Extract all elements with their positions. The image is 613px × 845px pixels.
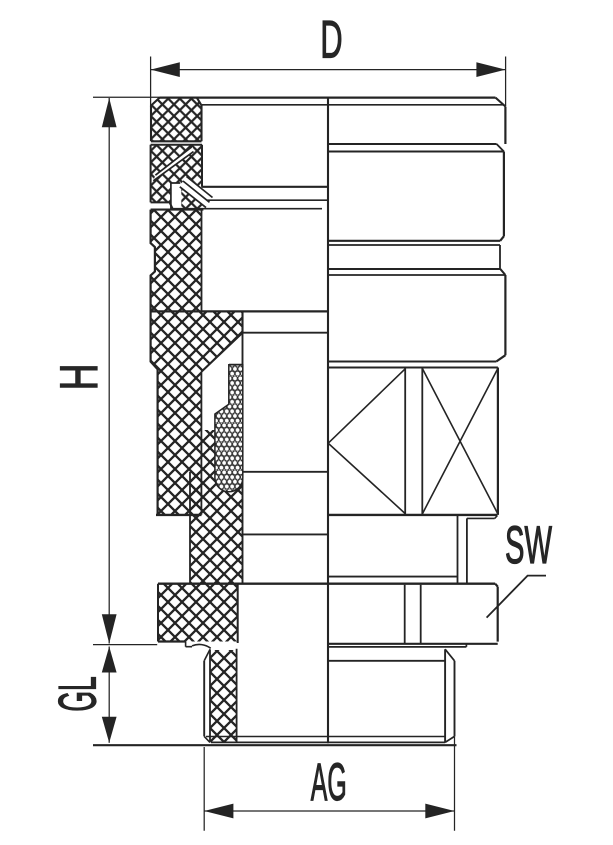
svg-text:D: D <box>320 11 342 70</box>
svg-text:H: H <box>49 364 108 391</box>
svg-text:AG: AG <box>311 753 347 812</box>
svg-text:GL: GL <box>47 676 106 711</box>
svg-text:SW: SW <box>505 516 552 575</box>
